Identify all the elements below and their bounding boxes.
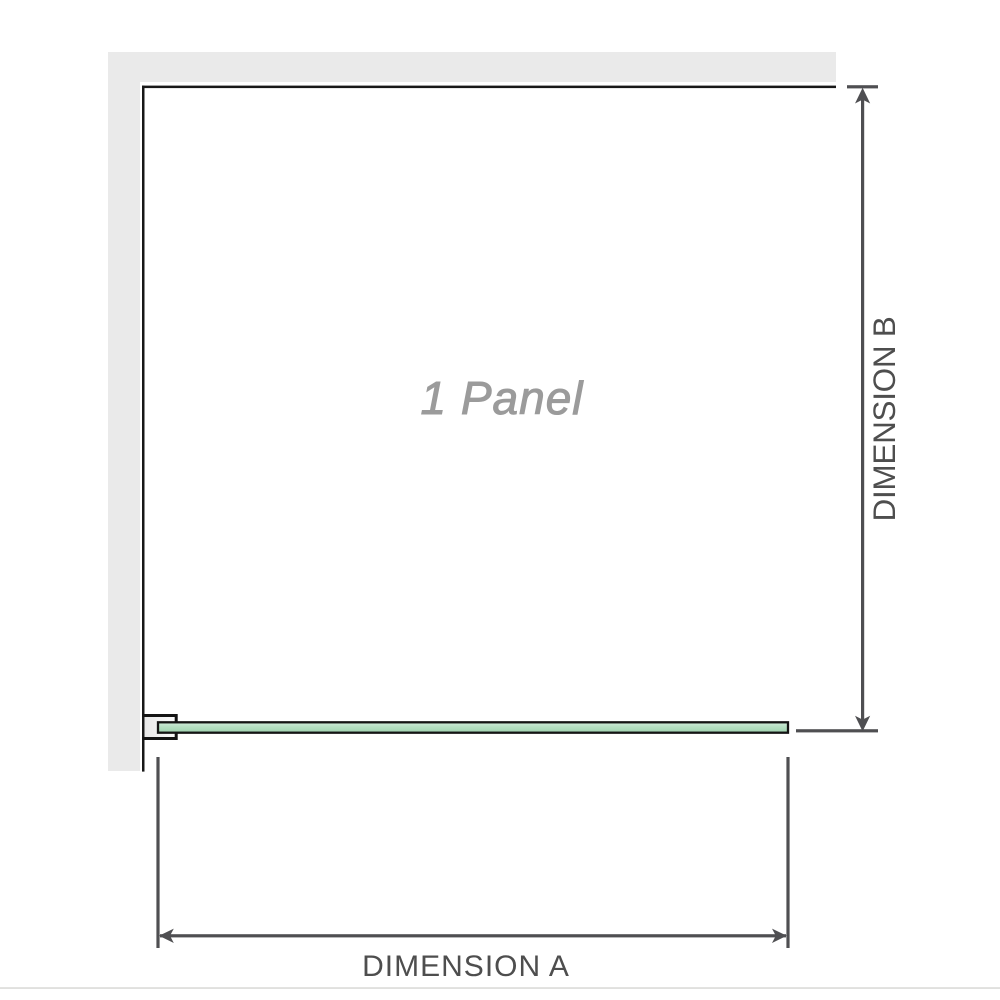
svg-text:1 Panel: 1 Panel: [420, 372, 584, 424]
svg-text:DIMENSION B: DIMENSION B: [866, 317, 902, 522]
svg-text:DIMENSION A: DIMENSION A: [362, 950, 570, 983]
